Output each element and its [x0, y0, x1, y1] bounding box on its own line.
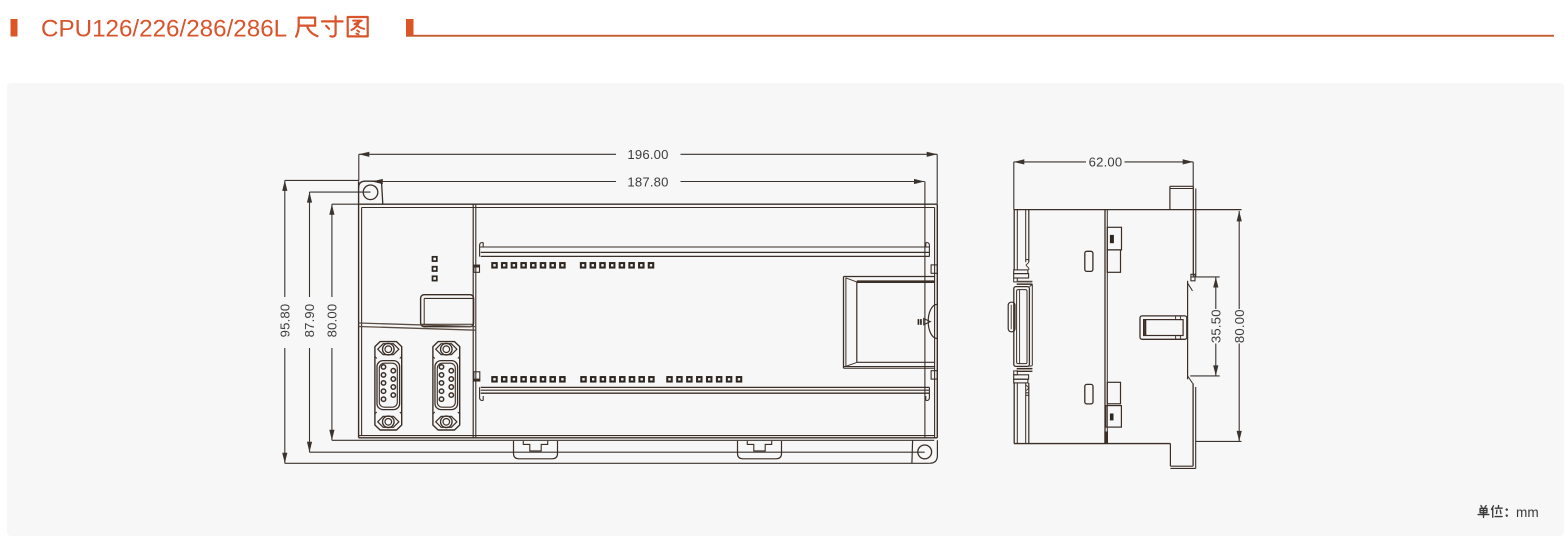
- svg-text:196.00: 196.00: [627, 147, 668, 162]
- svg-text:95.80: 95.80: [278, 304, 293, 338]
- svg-text:62.00: 62.00: [1089, 154, 1123, 169]
- svg-text:CPU126/226/286/286L: CPU126/226/286/286L: [41, 16, 287, 43]
- svg-text:87.90: 87.90: [302, 304, 317, 338]
- svg-text:187.80: 187.80: [627, 175, 668, 190]
- svg-text:mm: mm: [1516, 505, 1539, 520]
- svg-text:35.50: 35.50: [1209, 309, 1224, 343]
- svg-text:80.00: 80.00: [325, 304, 340, 338]
- svg-text:80.00: 80.00: [1232, 309, 1247, 343]
